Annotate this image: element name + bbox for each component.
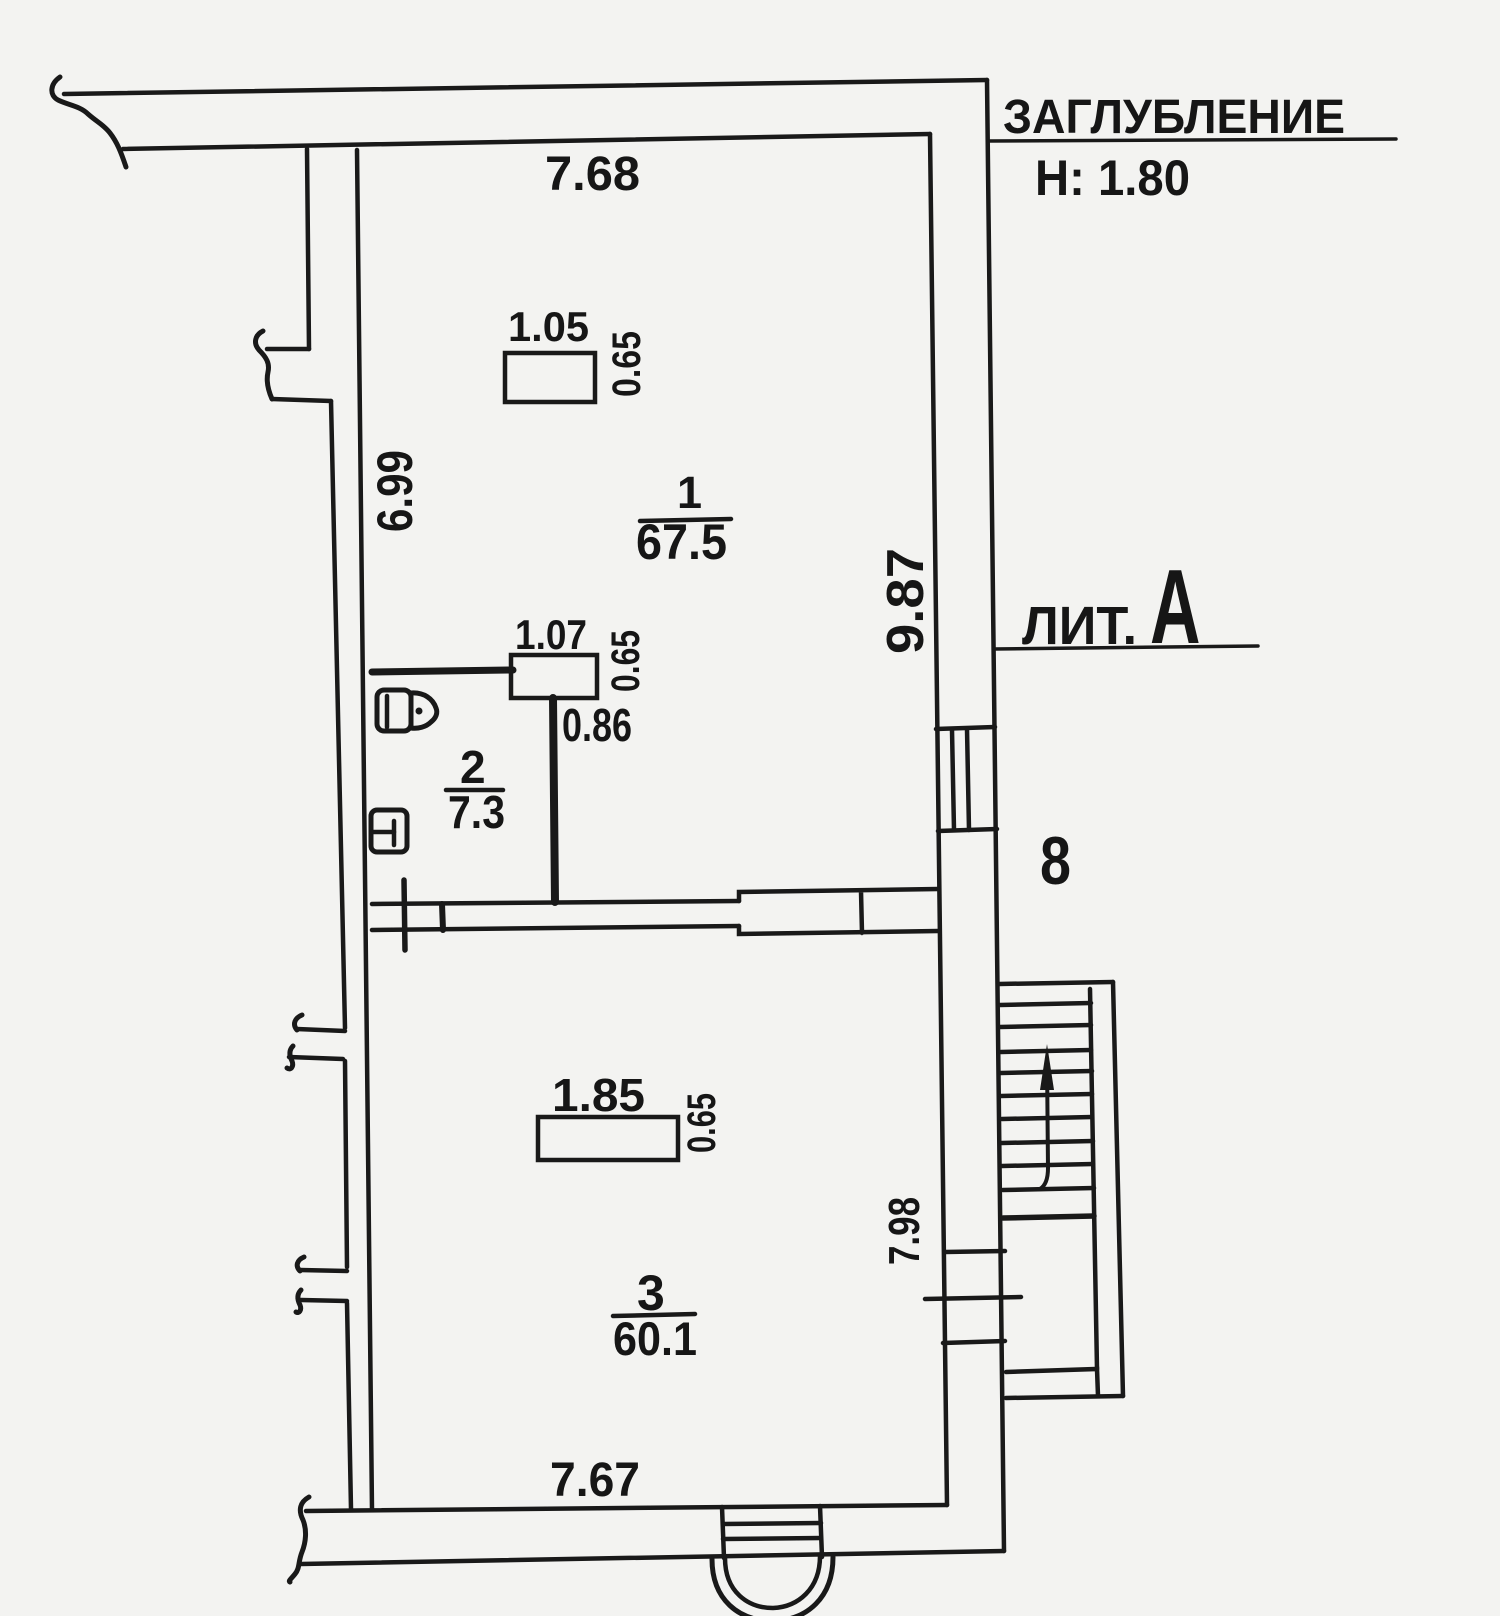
svg-text:1.85: 1.85 [552, 1069, 645, 1121]
svg-text:7.3: 7.3 [448, 786, 505, 838]
svg-text:Н: 1.80: Н: 1.80 [1035, 150, 1190, 206]
svg-text:8: 8 [1040, 823, 1071, 899]
svg-text:А: А [1150, 549, 1201, 667]
svg-text:7.68: 7.68 [545, 148, 640, 201]
svg-text:7.98: 7.98 [880, 1197, 929, 1265]
svg-text:1: 1 [677, 467, 702, 518]
svg-text:1.05: 1.05 [508, 303, 589, 350]
svg-text:7.67: 7.67 [550, 1454, 640, 1507]
svg-text:6.99: 6.99 [367, 450, 423, 532]
svg-text:0.65: 0.65 [604, 630, 648, 692]
svg-text:67.5: 67.5 [636, 514, 727, 570]
svg-text:0.65: 0.65 [680, 1093, 724, 1153]
svg-text:ЛИТ.: ЛИТ. [1022, 596, 1137, 656]
svg-text:1.07: 1.07 [515, 611, 587, 658]
svg-text:0.65: 0.65 [605, 331, 649, 397]
svg-text:ЗАГЛУБЛЕНИЕ: ЗАГЛУБЛЕНИЕ [1003, 91, 1345, 144]
svg-text:60.1: 60.1 [613, 1312, 697, 1365]
svg-text:0.86: 0.86 [562, 699, 632, 751]
svg-text:9.87: 9.87 [877, 548, 935, 654]
